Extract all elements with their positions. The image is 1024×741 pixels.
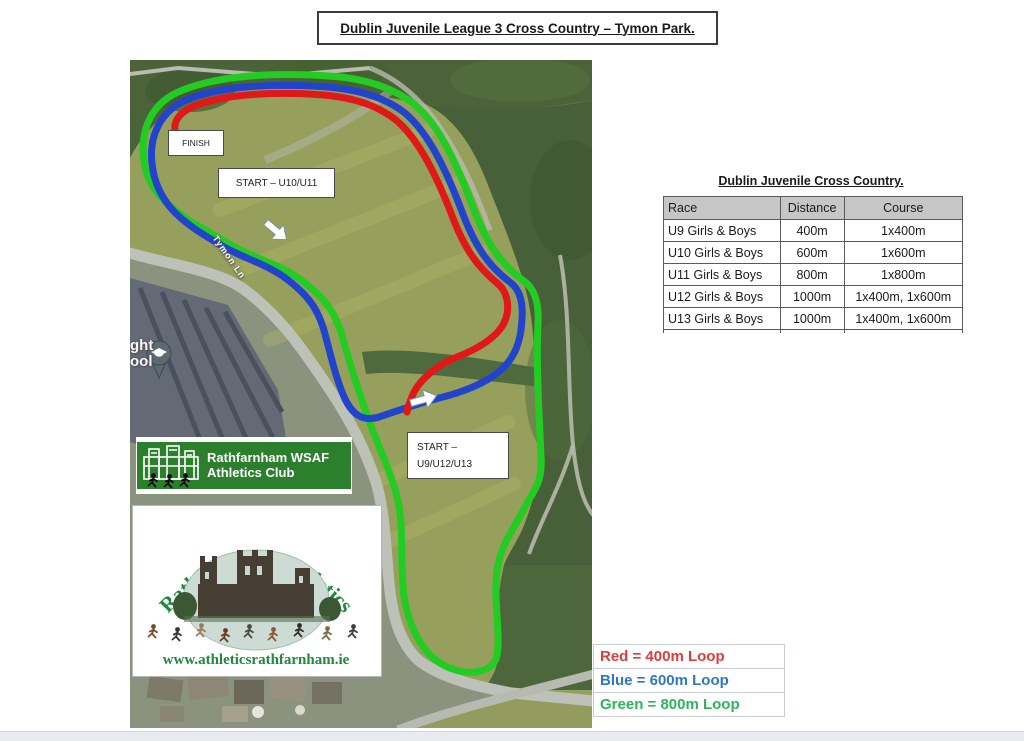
table-row: U9 Girls & Boys 400m 1x400m <box>664 220 963 242</box>
club-banner-text: Rathfarnham WSAF Athletics Club <box>207 451 329 481</box>
start-u10-u11-label: START – U10/U11 <box>218 168 335 198</box>
col-header-race: Race <box>664 197 781 220</box>
col-header-distance: Distance <box>780 197 844 220</box>
athletics-logo: Rathfarnham Athletics <box>132 505 382 677</box>
legend-green-row: Green = 800m Loop <box>593 692 785 717</box>
loop-legend: Red = 400m Loop Blue = 600m Loop Green =… <box>593 645 785 717</box>
table-row: U12 Girls & Boys 1000m 1x400m, 1x600m <box>664 286 963 308</box>
page-title: Dublin Juvenile League 3 Cross Country –… <box>340 21 695 36</box>
page-title-box: Dublin Juvenile League 3 Cross Country –… <box>317 11 718 45</box>
finish-label: FINISH <box>168 130 224 156</box>
table-row: U13 Girls & Boys 1000m 1x400m, 1x600m <box>664 308 963 330</box>
flyer-page: Dublin Juvenile League 3 Cross Country –… <box>0 0 1024 741</box>
legend-blue-row: Blue = 600m Loop <box>593 668 785 693</box>
col-header-course: Course <box>844 197 962 220</box>
clipped-poi-label: ght ool <box>130 338 153 370</box>
race-table-container: Race Distance Course U9 Girls & Boys 400… <box>663 196 963 333</box>
table-row: U10 Girls & Boys 600m 1x600m <box>664 242 963 264</box>
legend-red-row: Red = 400m Loop <box>593 644 785 669</box>
course-map: FINISH START – U10/U11 START – U9/U12/U1… <box>130 60 592 728</box>
table-row: U14 Girls & Boys 1200m 2x600m <box>664 330 963 334</box>
start-u9-u12-u13-label: START – U9/U12/U13 <box>407 432 509 479</box>
race-table: Race Distance Course U9 Girls & Boys 400… <box>663 196 963 333</box>
castle-icon <box>141 443 203 489</box>
table-row: U11 Girls & Boys 800m 1x800m <box>664 264 963 286</box>
table-title: Dublin Juvenile Cross Country. <box>663 174 959 188</box>
window-bottom-strip <box>0 731 1024 741</box>
club-banner: Rathfarnham WSAF Athletics Club <box>136 437 352 494</box>
logo-website: www.athleticsrathfarnham.ie <box>163 652 350 668</box>
